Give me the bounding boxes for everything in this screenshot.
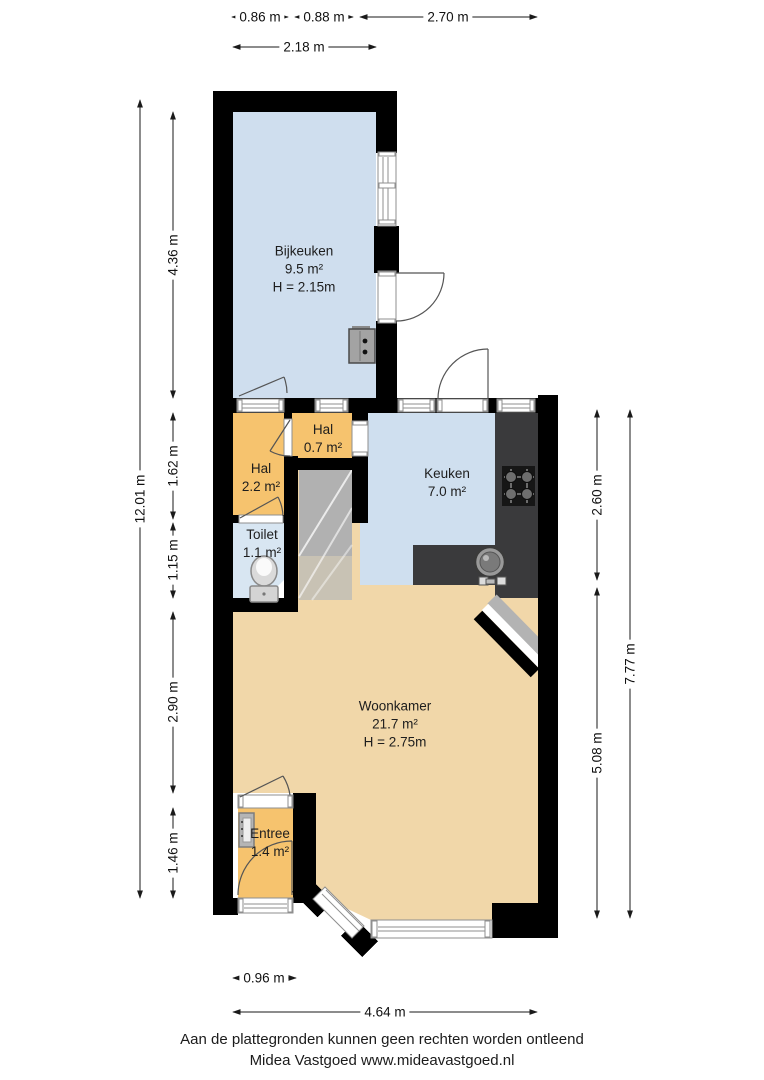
room-label-woonkamer: Woonkamer 21.7 m² H = 2.75m [359, 697, 432, 750]
boiler [349, 326, 375, 363]
wall-left [213, 91, 233, 915]
dim-left-3: 2.90 m [166, 677, 181, 726]
opening-halboven-keuken [352, 421, 368, 456]
dim-right-1: 5.08 m [590, 728, 605, 777]
room-name: Hal [304, 421, 342, 439]
wall-bottom-right [492, 903, 558, 938]
dim-bottom-0: 0.96 m [239, 971, 288, 986]
room-area: 9.5 m² [273, 260, 336, 278]
dim-bottom-1: 4.64 m [360, 1005, 409, 1020]
wall-hal-keuken-stub [352, 413, 368, 421]
window-woonkamer-bottom [371, 920, 492, 938]
stove [502, 466, 535, 506]
room-area: 0.7 m² [304, 439, 342, 457]
door-swing-bijkeuken-right [396, 273, 444, 321]
dim-top-1: 0.88 m [299, 10, 348, 25]
room-area: 2.2 m² [242, 478, 280, 496]
toilet-fixture [250, 556, 278, 602]
dim-top-0: 0.86 m [235, 10, 284, 25]
wall-bijkeuken-right-lower [376, 321, 397, 400]
dim-left-4: 1.46 m [166, 828, 181, 877]
wall-below-hal-boven [290, 458, 353, 470]
wall-hal-keuken [352, 456, 368, 523]
wall-bijkeuken-right-upper [376, 91, 397, 153]
room-area: 21.7 m² [359, 715, 432, 733]
room-name: Toilet [243, 526, 281, 544]
dim-left-0: 4.36 m [166, 230, 181, 279]
window-bijkeuken-right [378, 152, 396, 226]
dim-top-2: 2.70 m [423, 10, 472, 25]
room-ceiling-height: H = 2.15m [273, 278, 336, 296]
kitchen-counter [495, 585, 538, 598]
dim-right-outer: 7.77 m [623, 639, 638, 688]
door-entree-woonkamer [238, 795, 293, 808]
dim-right-0: 2.60 m [590, 470, 605, 519]
door-keuken-top [437, 399, 488, 412]
sink [475, 547, 506, 585]
wall-top [213, 91, 397, 112]
wall-hal-toilet-left [213, 515, 239, 523]
room-ceiling-height: H = 2.75m [359, 733, 432, 751]
wall-bottom-left-cap [213, 898, 238, 915]
window-keuken-top-right [497, 399, 535, 412]
room-label-toilet: Toilet 1.1 m² [243, 526, 281, 562]
wall-toilet-right [284, 456, 298, 612]
room-keuken-strip [360, 545, 413, 585]
room-area: 1.4 m² [250, 843, 290, 861]
stairs [299, 470, 352, 600]
floorplan-page: 0.86 m 0.88 m 2.70 m 2.18 m 12.01 m 4.36… [0, 0, 764, 1080]
dim-left-2: 1.15 m [166, 535, 181, 584]
room-name: Woonkamer [359, 697, 432, 715]
window-hal-bijkeuken [237, 399, 284, 412]
wall-right [538, 395, 558, 938]
wall-bijkeuken-right-mid [374, 226, 399, 273]
footer-disclaimer: Aan de plattegronden kunnen geen rechten… [0, 1031, 764, 1048]
door-hal-halboven-frame [284, 419, 292, 456]
dim-top-row2: 2.18 m [279, 40, 328, 55]
wall-hal-toilet-right [283, 515, 298, 523]
room-area: 1.1 m² [243, 544, 281, 562]
room-name: Bijkeuken [273, 242, 336, 260]
dim-left-outer: 12.01 m [133, 471, 148, 528]
window-entree-front [238, 898, 293, 913]
door-swing-keuken-top [438, 349, 488, 399]
floorplan-drawing [0, 0, 764, 1080]
room-name: Entree [250, 825, 290, 843]
dim-left-1: 1.62 m [166, 441, 181, 490]
room-label-entree: Entree 1.4 m² [250, 825, 290, 861]
footer-agency: Midea Vastgoed www.mideavastgoed.nl [0, 1052, 764, 1069]
room-label-keuken: Keuken 7.0 m² [424, 465, 470, 501]
room-name: Keuken [424, 465, 470, 483]
door-toilet-frame [239, 515, 283, 523]
room-name: Hal [242, 460, 280, 478]
door-bijkeuken-right [378, 271, 396, 323]
room-label-hal: Hal 2.2 m² [242, 460, 280, 496]
room-label-hal-boven: Hal 0.7 m² [304, 421, 342, 457]
window-halboven-bijkeuken [315, 399, 348, 412]
room-area: 7.0 m² [424, 483, 470, 501]
wall-hal-divider-stub [284, 413, 292, 419]
room-label-bijkeuken: Bijkeuken 9.5 m² H = 2.15m [273, 242, 336, 295]
window-keuken-top-left [398, 399, 435, 412]
